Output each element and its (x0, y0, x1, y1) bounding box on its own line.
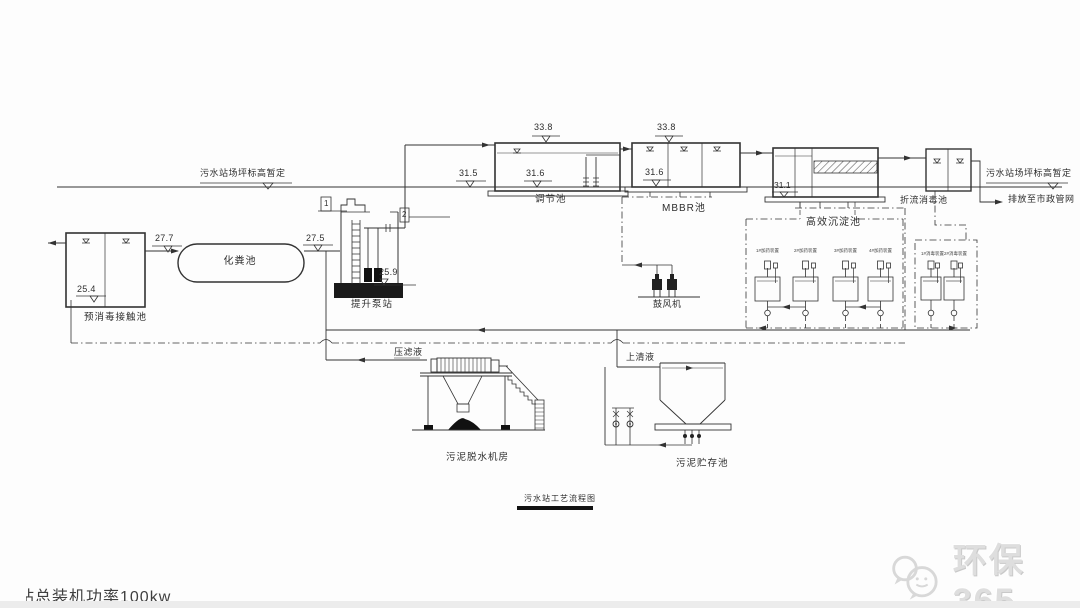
diagram-title: 污水站工艺流程图 (524, 495, 596, 503)
dosing-unit-label: 1#加药装置 (756, 249, 779, 254)
septic-tank-label: 化粪池 (196, 257, 284, 267)
wechat-bubbles-icon (888, 552, 943, 602)
regulating-tank-label: 调节池 (535, 195, 567, 205)
sedimentation-tank-label: 高效沉淀池 (806, 218, 861, 228)
dewatering-building-shape (412, 358, 545, 430)
discharge-label: 排放至市政管网 (1008, 195, 1075, 204)
baffled-disinfection-label: 折流消毒池 (900, 196, 948, 205)
sludge-storage-label: 污泥贮存池 (676, 459, 729, 469)
elevation-ground-31-5: 31.5 (459, 169, 478, 178)
return-lines (71, 251, 970, 367)
lift-tag-1: 1 (324, 200, 328, 208)
dosing-unit-label: 1#消毒装置 (921, 252, 944, 257)
elevation-lift: 25.9 (379, 268, 398, 277)
elevation-regulating-top: 33.8 (534, 123, 553, 132)
blower-label: 鼓风机 (653, 300, 682, 309)
elevation-septic-in: 27.7 (155, 234, 174, 243)
watermark: 环保365 (888, 533, 1080, 608)
sludge-storage-tank-shape (605, 363, 731, 448)
ground-line (57, 183, 1068, 189)
elevation-mbbr-bottom: 31.6 (645, 168, 664, 177)
lift-pump-station-shape (318, 143, 495, 299)
dosing-unit-label: 3#加药装置 (834, 249, 857, 254)
lift-station-label: 提升泵站 (351, 300, 393, 310)
pre-contact-tank-shape (48, 233, 145, 343)
dosing-skid-left-shape (746, 219, 903, 331)
elevation-regulating-bottom: 31.6 (526, 169, 545, 178)
dosing-unit-label: 4#加药装置 (869, 249, 892, 254)
dosing-unit-label: 2#加药装置 (794, 249, 817, 254)
mbbr-tank-label: MBBR池 (662, 204, 706, 214)
filtrate-label: 压滤液 (394, 348, 423, 357)
dewatering-room-label: 污泥脱水机房 (446, 453, 509, 463)
pre-contact-tank-label: 预消毒接触池 (84, 313, 147, 323)
process-flow-drawing (0, 0, 1080, 608)
ground-right-label: 污水站场坪标高暂定 (986, 169, 1072, 178)
title-bar (517, 506, 593, 510)
blower-shape (622, 263, 700, 298)
elevation-sedimentation: 31.1 (774, 181, 791, 190)
elevation-mbbr-top: 33.8 (657, 123, 676, 132)
elevation-septic-out: 27.5 (306, 234, 325, 243)
bottom-bar (0, 601, 1080, 608)
watermark-text: 环保365 (953, 533, 1080, 608)
mbbr-tank-shape (622, 136, 773, 265)
supernatant-label: 上清液 (626, 353, 655, 362)
process-flow-diagram: 污水站场坪标高暂定 污水站场坪标高暂定 排放至市政管网 预消毒接触池 25.4 … (0, 0, 1080, 608)
lift-tag-2: 2 (402, 211, 406, 219)
elevation-pre-contact: 25.4 (77, 285, 96, 294)
ground-left-label: 污水站场坪标高暂定 (200, 169, 286, 178)
dosing-unit-label: 2#消毒装置 (944, 252, 967, 257)
